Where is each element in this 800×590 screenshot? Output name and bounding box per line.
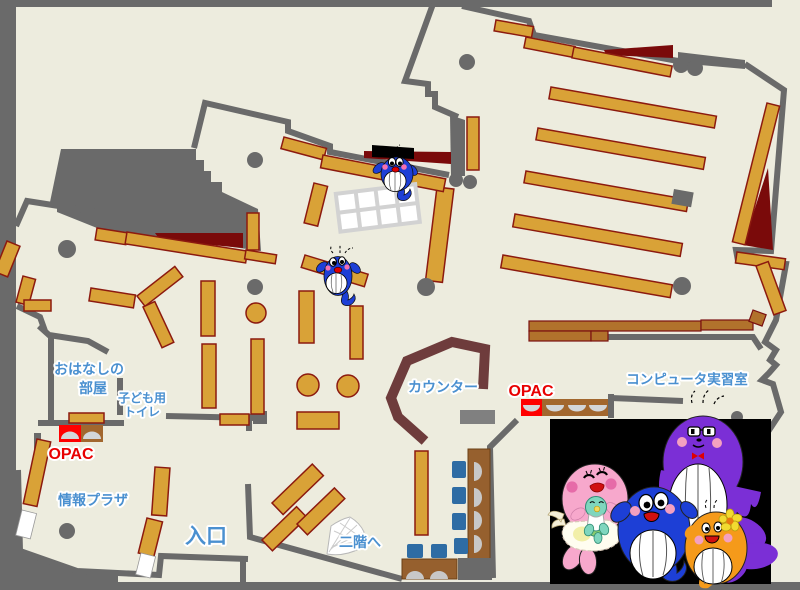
svg-text:カウンター: カウンター bbox=[408, 379, 478, 395]
svg-text:子ども用: 子ども用 bbox=[118, 391, 166, 405]
svg-text:入口: 入口 bbox=[185, 525, 227, 548]
svg-text:OPAC: OPAC bbox=[48, 446, 93, 463]
svg-text:おはなしの: おはなしの bbox=[54, 361, 124, 377]
svg-text:二階へ: 二階へ bbox=[339, 534, 381, 550]
svg-text:OPAC: OPAC bbox=[508, 383, 553, 400]
svg-text:部屋: 部屋 bbox=[79, 380, 107, 396]
svg-text:トイレ: トイレ bbox=[124, 405, 160, 419]
svg-text:コンピュータ実習室: コンピュータ実習室 bbox=[626, 371, 748, 387]
svg-text:情報プラザ: 情報プラザ bbox=[58, 492, 128, 508]
